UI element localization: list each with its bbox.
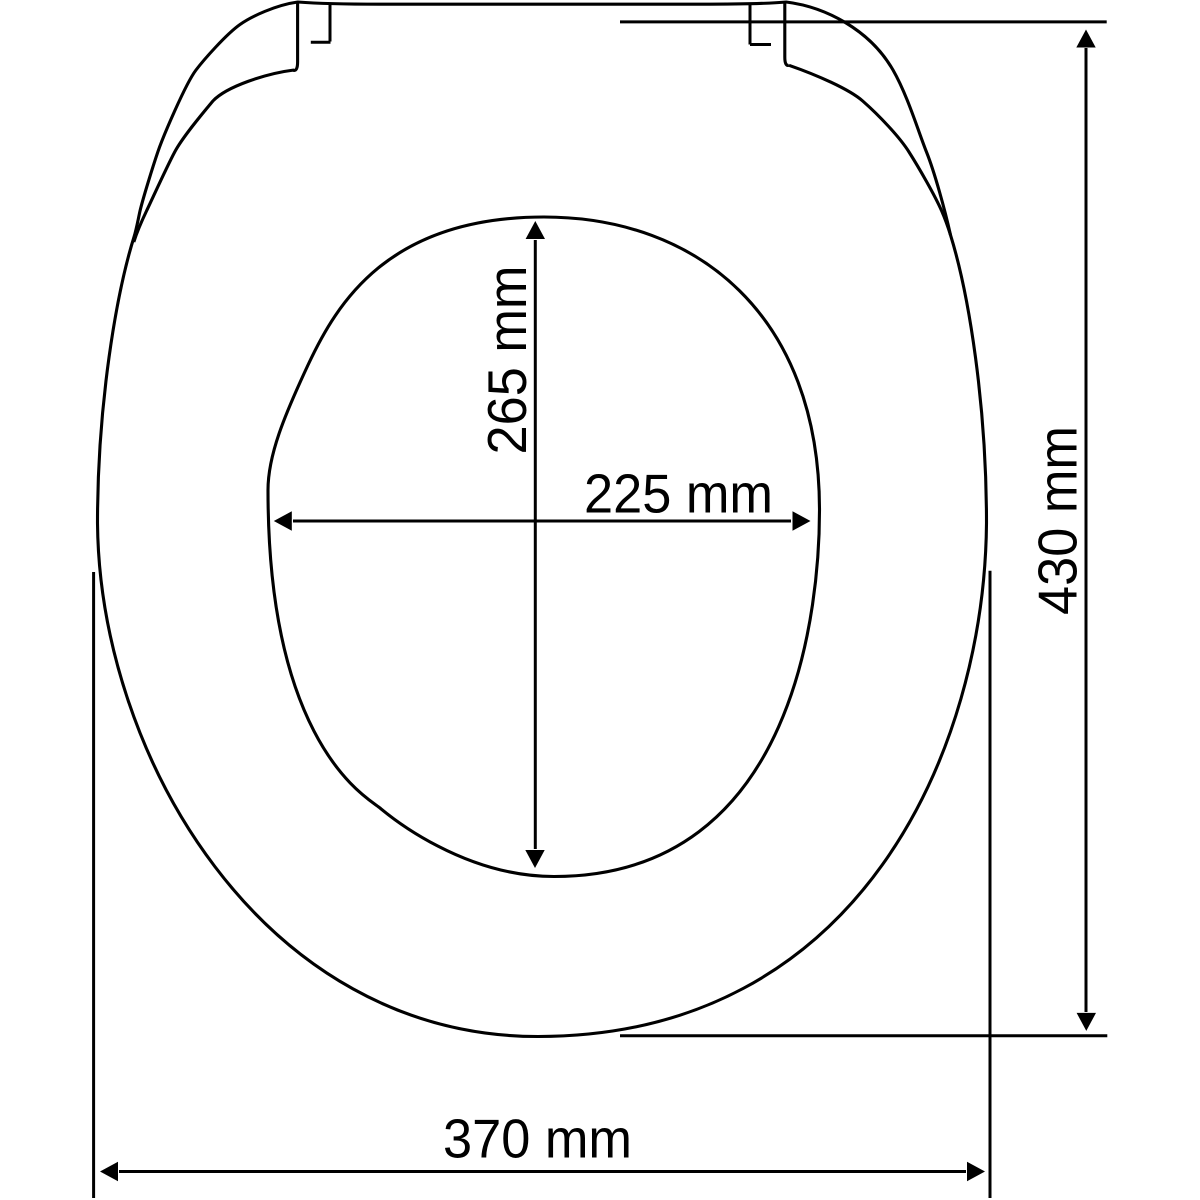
- svg-text:225 mm: 225 mm: [584, 462, 773, 524]
- svg-text:370 mm: 370 mm: [443, 1108, 632, 1170]
- svg-text:430 mm: 430 mm: [1027, 426, 1089, 615]
- svg-text:265 mm: 265 mm: [476, 266, 538, 455]
